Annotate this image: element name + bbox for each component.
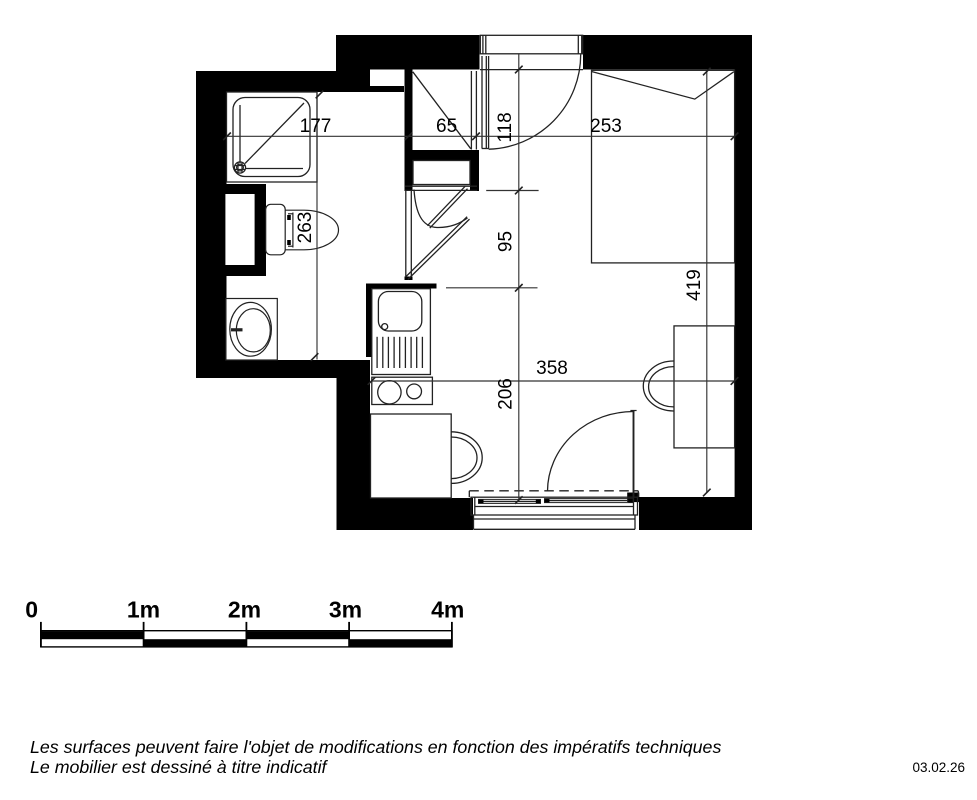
svg-text:65: 65 bbox=[436, 116, 457, 137]
svg-text:Le mobilier est dessiné à titr: Le mobilier est dessiné à titre indicati… bbox=[30, 757, 329, 777]
svg-text:263: 263 bbox=[295, 212, 316, 244]
svg-text:4m: 4m bbox=[431, 597, 464, 623]
svg-text:Les surfaces peuvent faire l'o: Les surfaces peuvent faire l'objet de mo… bbox=[30, 737, 721, 757]
svg-text:0: 0 bbox=[25, 597, 38, 623]
svg-text:1m: 1m bbox=[127, 597, 160, 623]
svg-text:358: 358 bbox=[536, 358, 568, 379]
svg-text:03.02.26: 03.02.26 bbox=[912, 760, 965, 775]
svg-text:2m: 2m bbox=[228, 597, 261, 623]
svg-text:118: 118 bbox=[495, 112, 516, 142]
svg-text:95: 95 bbox=[496, 231, 517, 252]
svg-text:3m: 3m bbox=[329, 597, 362, 623]
svg-text:419: 419 bbox=[684, 269, 705, 301]
svg-text:177: 177 bbox=[300, 116, 332, 137]
svg-text:253: 253 bbox=[590, 116, 622, 137]
svg-text:206: 206 bbox=[496, 378, 517, 410]
